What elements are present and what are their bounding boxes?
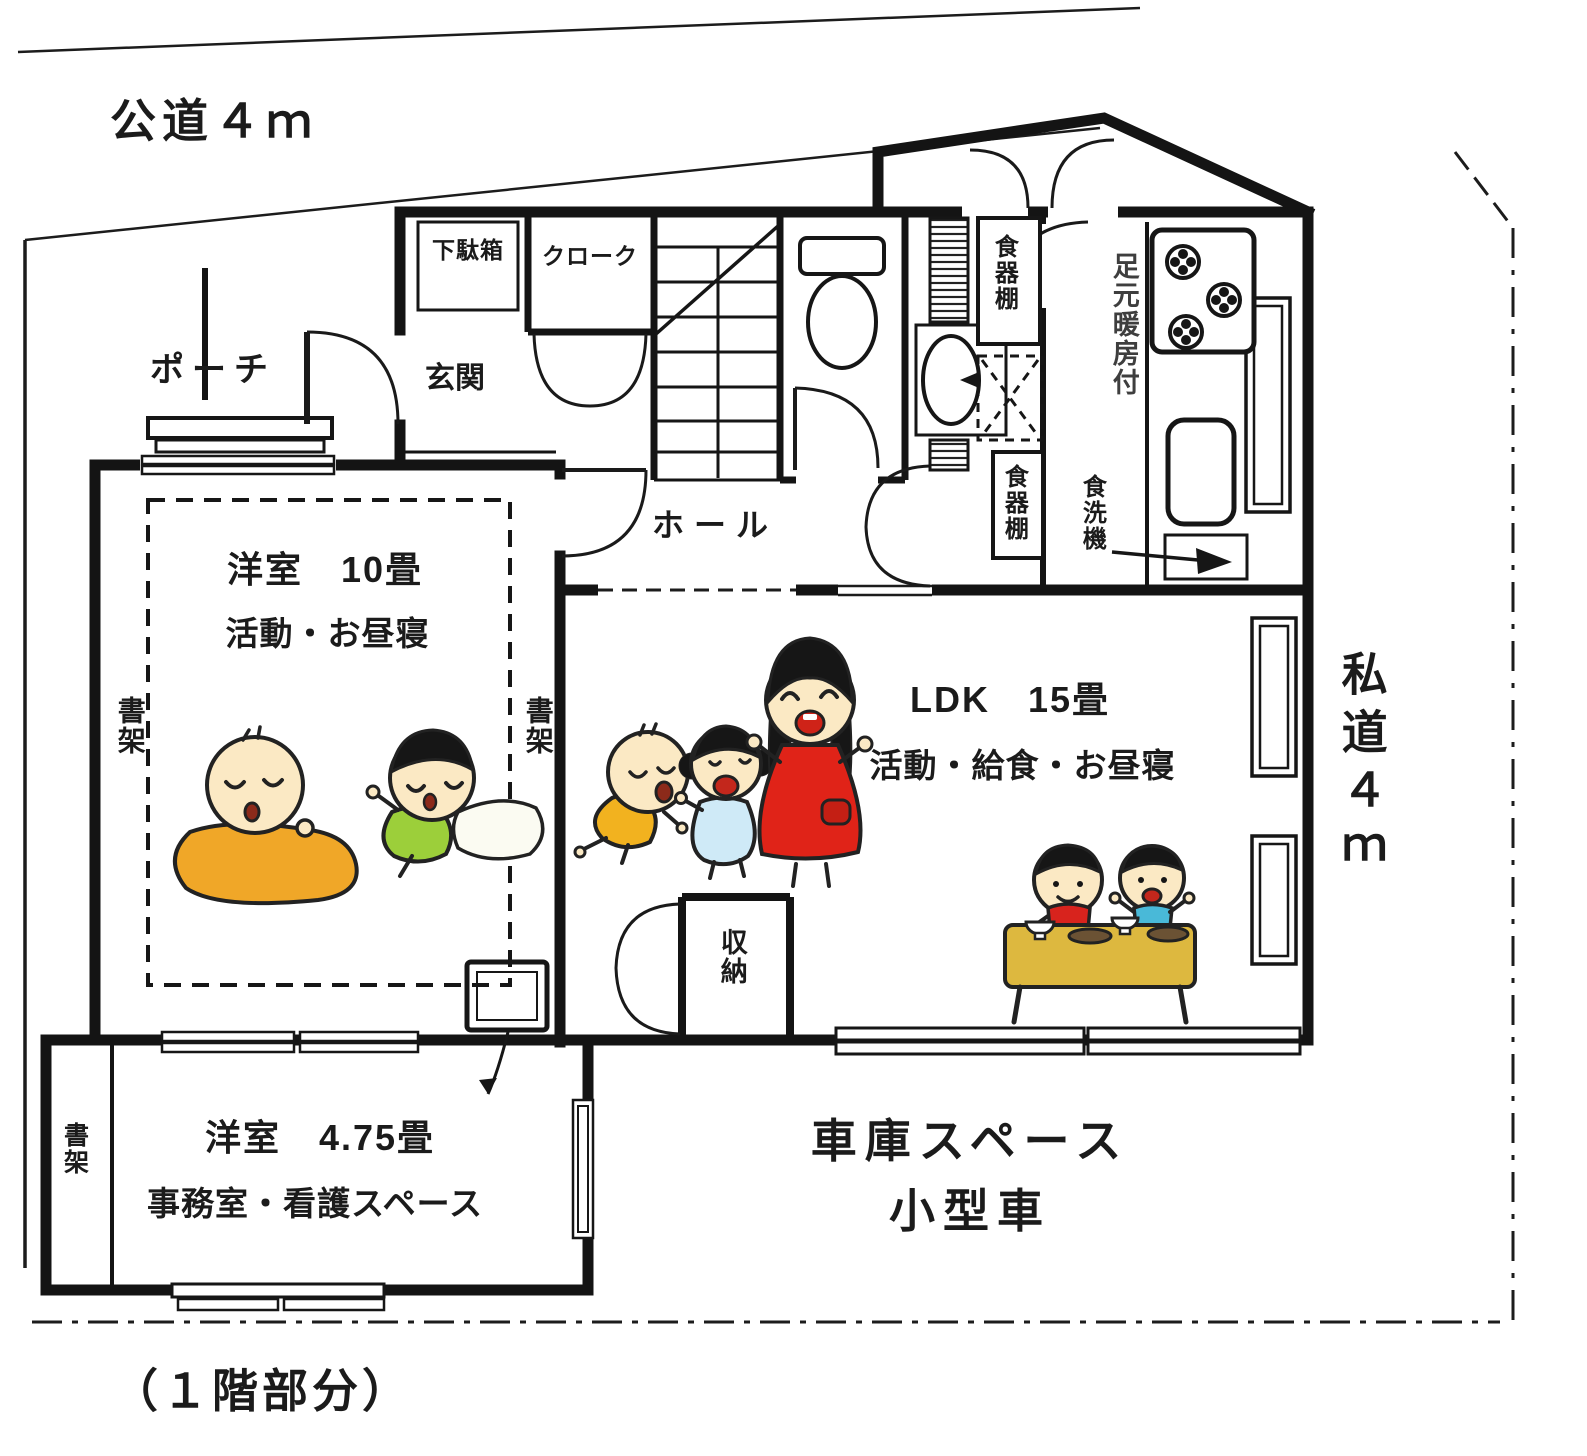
sleeping-baby-figure — [175, 727, 357, 903]
playroom-bookshelf-right-label: 書架 — [522, 696, 553, 756]
playroom-use: 活動・お昼寝 — [155, 616, 500, 652]
playroom-porch-window — [140, 455, 336, 475]
washroom-double-door — [866, 466, 930, 586]
ldk-east-window-1 — [1252, 618, 1296, 776]
cloak-label: クローク — [528, 244, 652, 269]
dish-cabinet-top-label: 食器棚 — [990, 234, 1016, 312]
stove — [1152, 230, 1254, 352]
back-door-right — [1052, 140, 1114, 208]
public-road-label: 公道４ｍ — [110, 96, 318, 147]
sleeping-toddler-figure — [367, 730, 543, 876]
floor-caption: （１階部分） — [112, 1366, 412, 1417]
crawling-baby-figure — [575, 724, 688, 863]
storage-label: 収納 — [716, 928, 746, 986]
shoe-cabinet-label: 下駄箱 — [420, 238, 516, 263]
lunch-table-group — [1005, 845, 1195, 1022]
toilet-door — [795, 388, 878, 470]
office-east-window — [573, 1100, 593, 1238]
counter-hatch-bottom — [930, 440, 968, 470]
floor-plan: 公道４ｍ ポーチ 下駄箱 クローク 玄関 ホール 洋室 10畳 活動・お昼寝 書… — [0, 0, 1587, 1456]
foot-heating-label: 足元暖房付 — [1108, 252, 1138, 397]
shoe-cabinet-box — [418, 222, 518, 310]
stairs — [656, 226, 778, 478]
office-bookshelf-label: 書架 — [60, 1122, 88, 1176]
dish-cabinet-bottom-label: 食器棚 — [1000, 464, 1026, 542]
boy-blue-figure — [1110, 846, 1194, 928]
toilet — [800, 238, 884, 368]
garage-label-line1: 車庫スペース — [760, 1116, 1180, 1167]
public-road-line — [18, 8, 1140, 52]
office-north-window-1 — [162, 1032, 294, 1052]
front-door — [307, 332, 398, 424]
back-door-left — [970, 150, 1028, 208]
porch-label: ポーチ — [150, 352, 276, 389]
ldk-south-window-1 — [836, 1028, 1084, 1054]
playroom-title: 洋室 10畳 — [160, 550, 490, 590]
hall-label: ホール — [652, 508, 778, 543]
office-south-window — [172, 1284, 384, 1310]
private-road-label: 私道４ｍ — [1336, 650, 1387, 882]
dishwasher-slot — [1112, 535, 1247, 579]
entrance-label: 玄関 — [425, 362, 485, 395]
garage-label-line2: 小型車 — [810, 1186, 1130, 1237]
playroom-bookshelf-left-label: 書架 — [114, 696, 145, 756]
kitchen-sink — [1168, 420, 1234, 524]
counter-hatch-top — [930, 218, 968, 322]
dishwasher-label: 食洗機 — [1078, 474, 1104, 552]
storage-double-door — [616, 904, 680, 1034]
office-title: 洋室 4.75畳 — [140, 1118, 500, 1158]
ldk-use: 活動・給食・お昼寝 — [840, 748, 1205, 784]
office-service-box — [467, 962, 547, 1094]
site-corner-dash — [1455, 152, 1513, 228]
ldk-title: LDK 15畳 — [855, 680, 1165, 720]
office-use: 事務室・看護スペース — [105, 1186, 525, 1222]
office-north-window-2 — [300, 1032, 418, 1052]
cloak-double-door — [534, 334, 646, 406]
angled-corner-wall — [878, 118, 1308, 212]
ldk-east-window-2 — [1252, 836, 1296, 964]
ldk-south-window-2 — [1088, 1028, 1300, 1054]
hall-playroom-door — [562, 470, 646, 556]
